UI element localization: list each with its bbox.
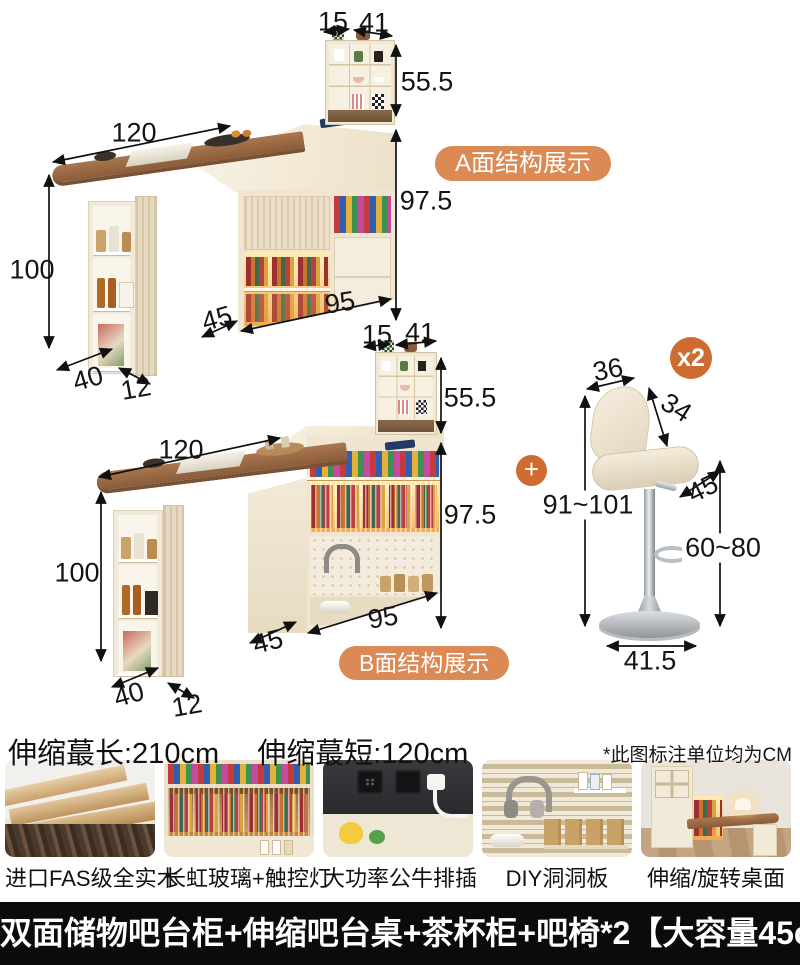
paper-towel-roll — [320, 601, 350, 613]
column-a-cubby-jars — [93, 206, 130, 255]
dim-stool-back-height: 34 — [656, 389, 696, 428]
decor-bottle — [284, 840, 293, 855]
dim-a-column-depth: 12 — [119, 373, 153, 405]
decor-jar — [408, 576, 419, 592]
decor-bottle — [260, 840, 269, 855]
snack-shelf-rail — [307, 477, 442, 480]
decor-green-cup — [354, 51, 363, 62]
lit-glass-cabinet — [168, 788, 310, 836]
product-title-bar: 双面储物吧台柜+伸缩吧台桌+茶杯柜+吧椅*2【大容量45cm】 — [0, 902, 800, 965]
decor-jar — [380, 576, 391, 592]
column-b-cubby-bottles — [118, 565, 157, 618]
decor-cup-row — [382, 361, 391, 371]
decor-glass-cup — [281, 436, 290, 448]
headphones-icon — [324, 544, 360, 573]
feature-caption: 长虹玻璃+触控灯 — [164, 861, 314, 893]
stool-base-disc — [599, 611, 700, 638]
decor-magazine — [123, 631, 151, 671]
dim-b-table-length: 120 — [158, 437, 203, 464]
decor-bottle — [590, 774, 600, 790]
cabinet-b-pegboard — [310, 536, 440, 595]
socket — [357, 770, 383, 794]
quantity-x2-badge: x2 — [670, 337, 712, 379]
product-dimension-infographic: 15 41 55.5 120 97.5 100 95 45 40 12 15 4… — [0, 0, 800, 965]
extension-specs: 伸缩蕞长:210cm 伸缩蕞短:120cm — [8, 730, 468, 772]
column-b-cubby-jars — [118, 515, 157, 562]
dim-b-hutch-height: 55.5 — [444, 385, 497, 412]
decor-jar — [394, 574, 405, 592]
decor-checker-vase — [416, 400, 427, 414]
ribbed-glass — [168, 788, 310, 836]
decor-bottle — [108, 278, 116, 308]
decor-jar — [96, 230, 106, 252]
spec-min-extension: 伸缩蕞短:120cm — [257, 738, 468, 770]
dim-a-cabinet-depth: 45 — [199, 302, 235, 336]
feature-thumb-power-strip — [323, 760, 473, 857]
socket-pins — [365, 778, 375, 786]
paper-roll — [490, 834, 524, 847]
column-a-side — [135, 196, 157, 376]
column-b-side — [163, 505, 184, 677]
decor-jar — [122, 232, 131, 252]
jar-row — [544, 819, 628, 849]
decor-bottle — [602, 774, 612, 790]
decor-box — [145, 591, 158, 615]
hutch-b — [375, 352, 437, 435]
decor-green-cup — [400, 361, 408, 371]
dim-b-top-width: 41 — [405, 320, 435, 347]
coffee-cup-a — [94, 150, 117, 162]
dim-b-cabinet-width: 95 — [366, 602, 400, 633]
dim-a-top-depth: 15 — [318, 9, 348, 36]
column-a-cubby-bottles — [93, 258, 130, 311]
feature-thumb-pegboard — [482, 760, 632, 857]
feature-thumb-rotating-table — [641, 760, 791, 857]
decor-jar — [422, 574, 433, 592]
decor-books — [398, 400, 409, 414]
decor-bottle — [97, 278, 105, 308]
column-b-front — [113, 510, 163, 677]
mini-hutch-grid — [655, 770, 689, 798]
headphone-earcup — [530, 800, 544, 818]
dim-b-column-depth: 12 — [170, 690, 204, 722]
decor-bottle — [578, 772, 588, 790]
cabinet-b-side-panel — [248, 478, 307, 633]
dim-stool-footrest-height: 60~80 — [682, 534, 764, 563]
headphone-earcup — [504, 800, 518, 818]
dim-a-top-width: 41 — [359, 10, 389, 37]
feature-caption: 大功率公牛排插 — [323, 861, 473, 893]
decor-bottle — [133, 585, 141, 615]
feature-caption: 伸缩/旋转桌面 — [641, 861, 791, 893]
decor-box — [119, 282, 134, 308]
column-a-front — [88, 201, 136, 374]
hutch-a-drawer — [328, 110, 392, 122]
glass-shelf — [244, 288, 329, 291]
feature-thumb-solid-wood — [5, 760, 155, 857]
tall-cabinet — [651, 766, 693, 848]
drawer-divider — [335, 276, 390, 278]
cabinet-a-snack-shelf — [334, 196, 391, 233]
dim-a-cabinet-width: 95 — [323, 287, 357, 318]
cabinet-a-front — [238, 190, 396, 332]
cabinet-a-lit-shelves — [244, 252, 329, 326]
dim-a-column-height: 100 — [9, 257, 54, 284]
dim-a-table-length: 120 — [111, 120, 156, 147]
socket — [395, 770, 421, 794]
wooden-tray-b — [255, 440, 304, 458]
decor-black-mug — [374, 51, 383, 62]
feature-caption: DIY洞洞板 — [482, 861, 632, 893]
decor-checker-vase — [372, 94, 384, 109]
section-b-badge: B面结构展示 — [339, 646, 509, 680]
dim-stool-base-diameter: 41.5 — [624, 648, 677, 675]
decor-jar — [134, 533, 144, 559]
feature-thumb-glass-light — [164, 760, 314, 857]
decor-jar — [147, 539, 157, 559]
tree-bark — [5, 824, 155, 857]
plus-icon: + — [516, 455, 547, 486]
wine-bottles-row — [246, 257, 328, 287]
hutch-a — [325, 40, 395, 125]
decor-jar — [109, 226, 119, 252]
decor-glass-cup — [265, 439, 274, 450]
dim-b-column-width: 40 — [111, 678, 147, 712]
ribbed-glass-overlay — [310, 481, 440, 532]
spec-max-extension: 伸缩蕞长:210cm — [8, 738, 219, 770]
unit-note: *此图标注单位均为CM — [603, 740, 792, 767]
dim-b-cabinet-depth: 45 — [250, 625, 286, 658]
decor-books — [352, 94, 364, 109]
pikachu-toy — [339, 822, 363, 844]
dim-a-cabinet-height: 97.5 — [400, 188, 453, 215]
decor-donut — [242, 129, 252, 137]
section-a-badge: A面结构展示 — [435, 146, 611, 181]
dim-stool-total-height: 91~101 — [540, 491, 637, 520]
dim-stool-seat-width: 36 — [591, 354, 626, 386]
decor-bottle — [272, 840, 281, 855]
hutch-b-drawer — [378, 420, 434, 432]
column-b-cubby-magazine — [118, 621, 157, 676]
decor-black-mug — [418, 361, 426, 371]
decor-magazine — [98, 324, 124, 366]
sauce-bottles-row — [246, 294, 328, 322]
decor-jar — [121, 537, 131, 559]
dim-b-column-height: 100 — [54, 560, 99, 587]
decor-bottle — [122, 585, 130, 615]
green-toy — [369, 830, 385, 844]
decor-lamp — [334, 49, 344, 61]
dim-b-cabinet-height: 97.5 — [444, 502, 497, 529]
bottom-shelf — [164, 836, 314, 857]
dim-b-top-depth: 15 — [362, 322, 392, 349]
table-lamp — [735, 798, 751, 810]
cabinet-a-fluted-drawer — [244, 196, 329, 250]
cabinet-b-lit-shelf — [310, 481, 440, 532]
feature-caption: 进口FAS级全实木 — [5, 861, 155, 893]
dim-a-hutch-height: 55.5 — [401, 69, 454, 96]
mini-support-column — [753, 824, 777, 856]
